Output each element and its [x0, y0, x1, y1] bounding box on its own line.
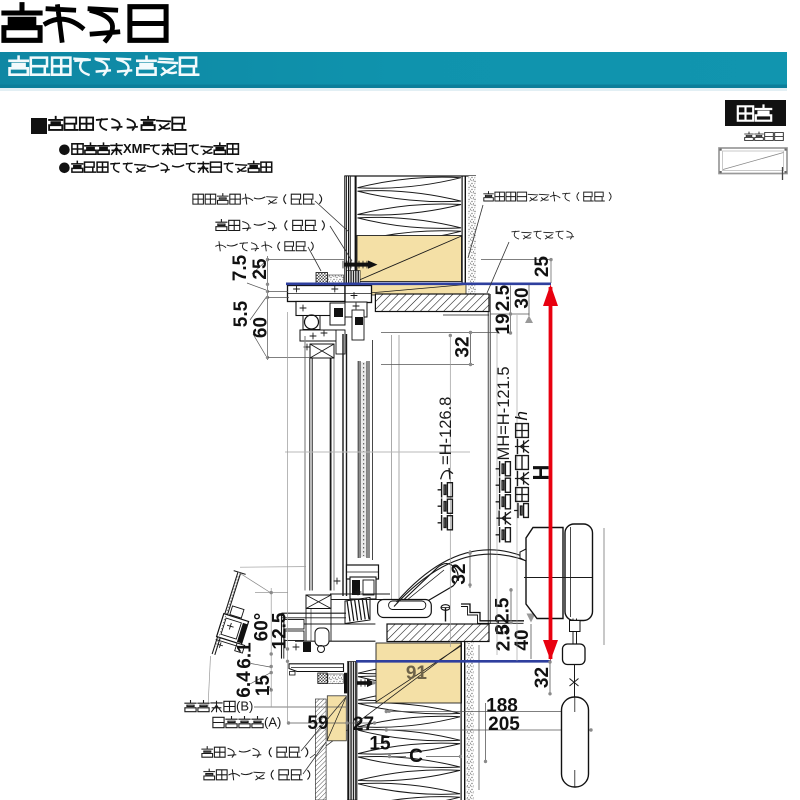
svg-text:25: 25: [532, 256, 553, 278]
svg-text:XMF: XMF: [123, 141, 151, 156]
svg-text:27: 27: [353, 714, 374, 735]
svg-text:7.5: 7.5: [230, 254, 251, 281]
svg-text:2.5: 2.5: [493, 284, 514, 311]
svg-text:(A): (A): [264, 715, 281, 730]
svg-text:15: 15: [253, 675, 274, 697]
svg-text:h: h: [512, 411, 531, 420]
svg-text:5.5: 5.5: [231, 300, 252, 327]
svg-text:19: 19: [493, 313, 514, 334]
svg-text:40: 40: [512, 629, 533, 650]
svg-text:C: C: [409, 746, 423, 767]
svg-text:32: 32: [449, 563, 470, 584]
svg-text:6.4: 6.4: [234, 671, 255, 698]
svg-text:30: 30: [512, 287, 533, 308]
svg-text:=H-126.8: =H-126.8: [437, 397, 455, 465]
svg-text:6.1: 6.1: [235, 642, 256, 669]
svg-text:32: 32: [453, 336, 474, 357]
svg-text:MH=H-121.5: MH=H-121.5: [495, 367, 513, 461]
svg-text:91: 91: [406, 663, 428, 684]
svg-text:205: 205: [488, 714, 520, 735]
svg-text:15: 15: [369, 734, 391, 755]
svg-text:(B): (B): [236, 699, 253, 714]
svg-text:60: 60: [251, 317, 272, 338]
svg-text:25: 25: [250, 258, 271, 280]
svg-text:12.5: 12.5: [270, 612, 291, 649]
svg-text:32: 32: [532, 667, 553, 688]
